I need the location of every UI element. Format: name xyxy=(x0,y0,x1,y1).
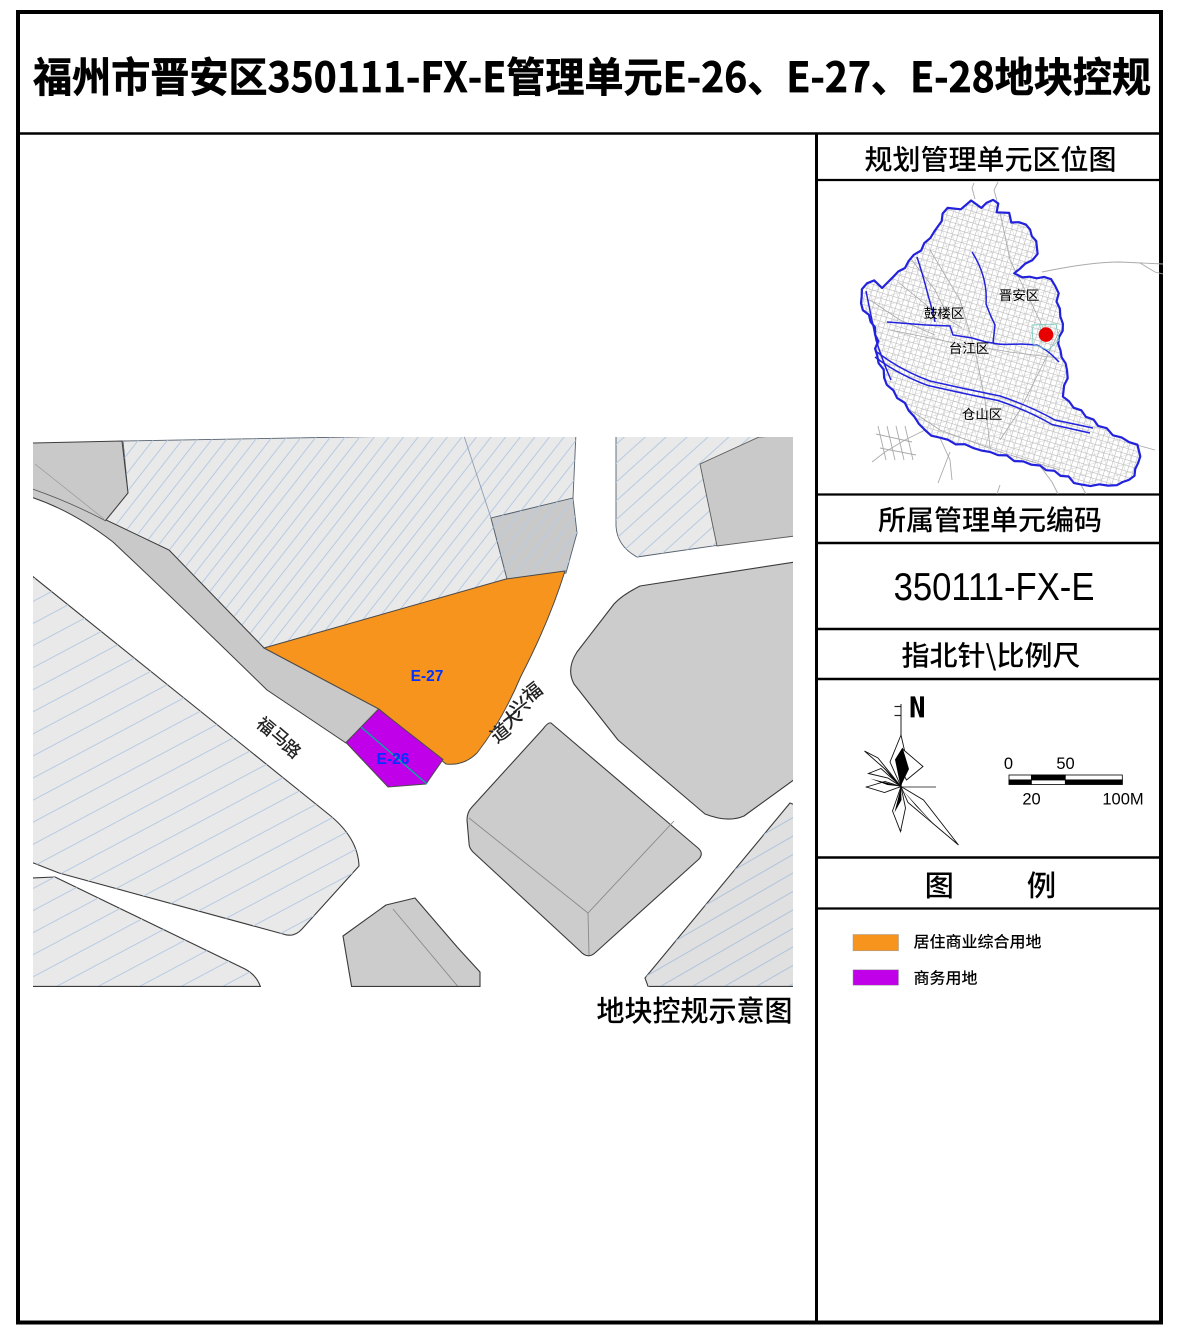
svg-text:50: 50 xyxy=(1056,755,1074,773)
svg-text:20: 20 xyxy=(1022,791,1040,809)
svg-text:350111-FX-E: 350111-FX-E xyxy=(894,565,1095,608)
svg-text:100M: 100M xyxy=(1102,791,1143,809)
svg-text:E-26: E-26 xyxy=(377,751,410,768)
svg-text:E-27: E-27 xyxy=(411,668,444,685)
svg-text:0: 0 xyxy=(1004,755,1013,773)
